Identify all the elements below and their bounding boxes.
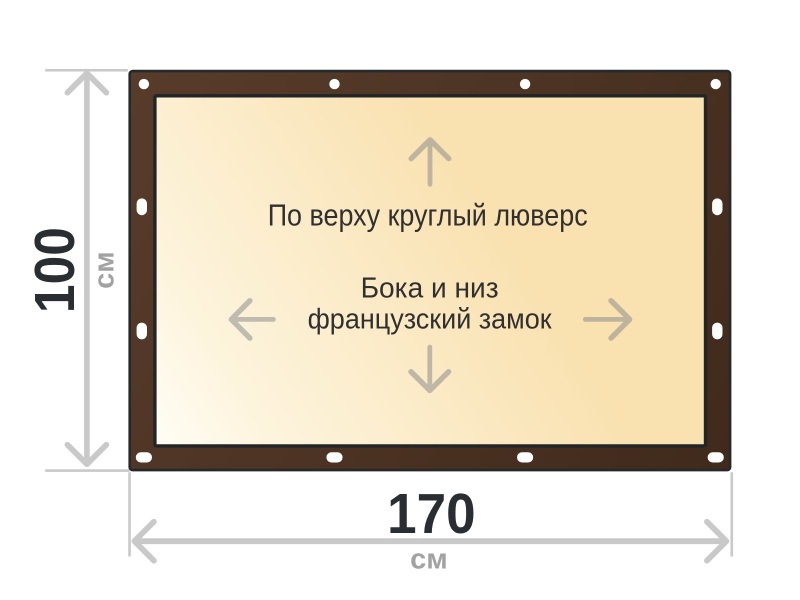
svg-text:100: 100 bbox=[23, 227, 86, 313]
svg-text:Бока и низ: Бока и низ bbox=[361, 273, 499, 305]
svg-text:см: см bbox=[410, 544, 448, 576]
svg-text:французский замок: французский замок bbox=[308, 303, 552, 335]
svg-text:По верху круглый люверс: По верху круглый люверс bbox=[268, 198, 588, 232]
svg-text:см: см bbox=[88, 251, 120, 289]
svg-text:170: 170 bbox=[387, 482, 476, 545]
